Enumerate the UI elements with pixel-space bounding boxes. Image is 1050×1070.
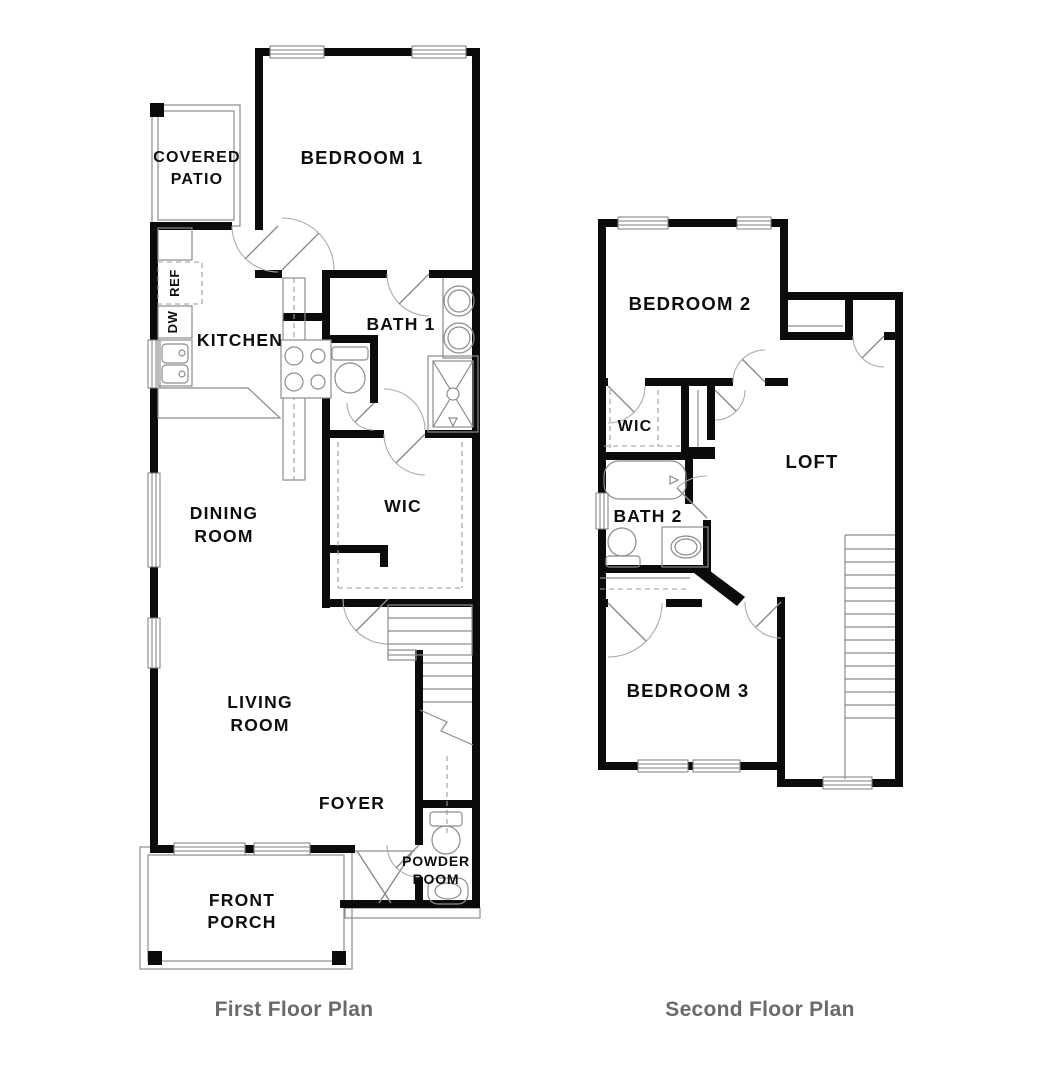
window <box>270 46 324 58</box>
window <box>737 217 771 229</box>
first-floor-plan: COVERED PATIO BEDROOM 1 KITCHEN REF DW B… <box>140 46 480 969</box>
hall-door <box>715 390 745 420</box>
stoop <box>345 908 480 918</box>
floor-plan-page: COVERED PATIO BEDROOM 1 KITCHEN REF DW B… <box>0 0 1050 1070</box>
patio-door <box>232 226 278 272</box>
toilet <box>606 528 640 567</box>
label-living-room: LIVING <box>227 692 293 712</box>
window <box>618 217 668 229</box>
bedroom3-closet-door <box>608 603 662 657</box>
kitchen-sink <box>158 340 192 386</box>
window <box>638 760 688 772</box>
label-wic: WIC <box>384 496 422 516</box>
stairs-first-floor <box>388 605 473 834</box>
bedroom2-door <box>733 350 765 382</box>
label-living-room-2: ROOM <box>230 715 289 735</box>
window <box>174 843 245 855</box>
bath1-fixtures <box>332 278 478 432</box>
label-wic-2: WIC <box>618 418 653 435</box>
label-bedroom-3: BEDROOM 3 <box>627 680 750 701</box>
toilet <box>332 347 368 393</box>
hall-closet-door <box>853 336 884 367</box>
label-bath-1: BATH 1 <box>366 314 435 334</box>
window <box>148 473 160 567</box>
bath1-door <box>387 274 429 316</box>
porch-post <box>148 951 162 965</box>
bedroom3-door <box>745 602 781 638</box>
label-bedroom-2: BEDROOM 2 <box>629 293 752 314</box>
porch-post <box>332 951 346 965</box>
bathtub <box>604 461 686 499</box>
label-dining-room-2: ROOM <box>194 526 253 546</box>
range <box>281 340 331 398</box>
label-bath-2: BATH 2 <box>613 506 682 526</box>
window <box>254 843 310 855</box>
label-covered-patio-2: PATIO <box>171 171 224 188</box>
window <box>596 493 608 529</box>
vanity-sink <box>662 527 708 567</box>
window <box>693 760 740 772</box>
stair-break-line <box>420 710 473 745</box>
label-bedroom-1: BEDROOM 1 <box>301 147 424 168</box>
window <box>823 777 872 789</box>
bedroom1-door <box>282 218 334 270</box>
label-covered-patio: COVERED <box>153 149 241 166</box>
label-loft: LOFT <box>785 451 838 472</box>
label-dishwasher: DW <box>165 310 180 333</box>
toilet <box>430 812 462 854</box>
kitchen-counter-l <box>158 388 280 418</box>
patio-post <box>150 103 164 117</box>
wic-door <box>384 389 425 475</box>
second-floor-plan: BEDROOM 2 WIC LOFT BATH 2 BEDROOM 3 <box>596 217 903 789</box>
kitchen-counter <box>158 228 192 260</box>
label-front-porch: FRONT <box>209 890 275 910</box>
toilet-room-door <box>347 403 374 430</box>
window <box>412 46 466 58</box>
floor-plan-canvas: COVERED PATIO BEDROOM 1 KITCHEN REF DW B… <box>0 0 1050 1070</box>
label-dining-room: DINING <box>190 503 258 523</box>
second-floor-caption: Second Floor Plan <box>665 998 854 1021</box>
vanity-sink <box>444 323 474 353</box>
label-refrigerator: REF <box>167 269 182 297</box>
stairs-second-floor <box>845 535 895 779</box>
label-powder-room-2: ROOM <box>413 871 460 887</box>
label-powder-room: POWDER <box>402 853 470 869</box>
shower <box>428 356 478 432</box>
kitchen-fixtures <box>158 228 331 480</box>
label-foyer: FOYER <box>319 793 385 813</box>
vanity-sink <box>444 286 474 316</box>
label-front-porch-2: PORCH <box>207 912 276 932</box>
first-floor-caption: First Floor Plan <box>215 998 374 1021</box>
window <box>148 618 160 668</box>
label-kitchen: KITCHEN <box>197 330 283 350</box>
